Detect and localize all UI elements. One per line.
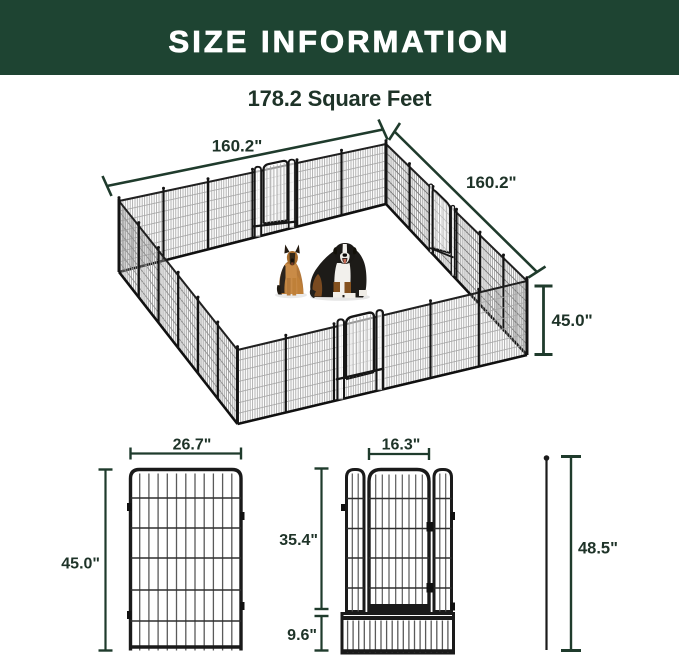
svg-text:45.0": 45.0" [61,556,100,573]
svg-text:9.6": 9.6" [287,627,317,644]
svg-text:35.4": 35.4" [279,532,318,549]
svg-text:48.5": 48.5" [578,540,618,558]
svg-text:16.3": 16.3" [382,437,421,454]
svg-text:160.2": 160.2" [212,137,263,156]
svg-text:45.0": 45.0" [552,311,593,330]
svg-text:26.7": 26.7" [173,437,212,454]
svg-text:160.2": 160.2" [466,173,517,192]
